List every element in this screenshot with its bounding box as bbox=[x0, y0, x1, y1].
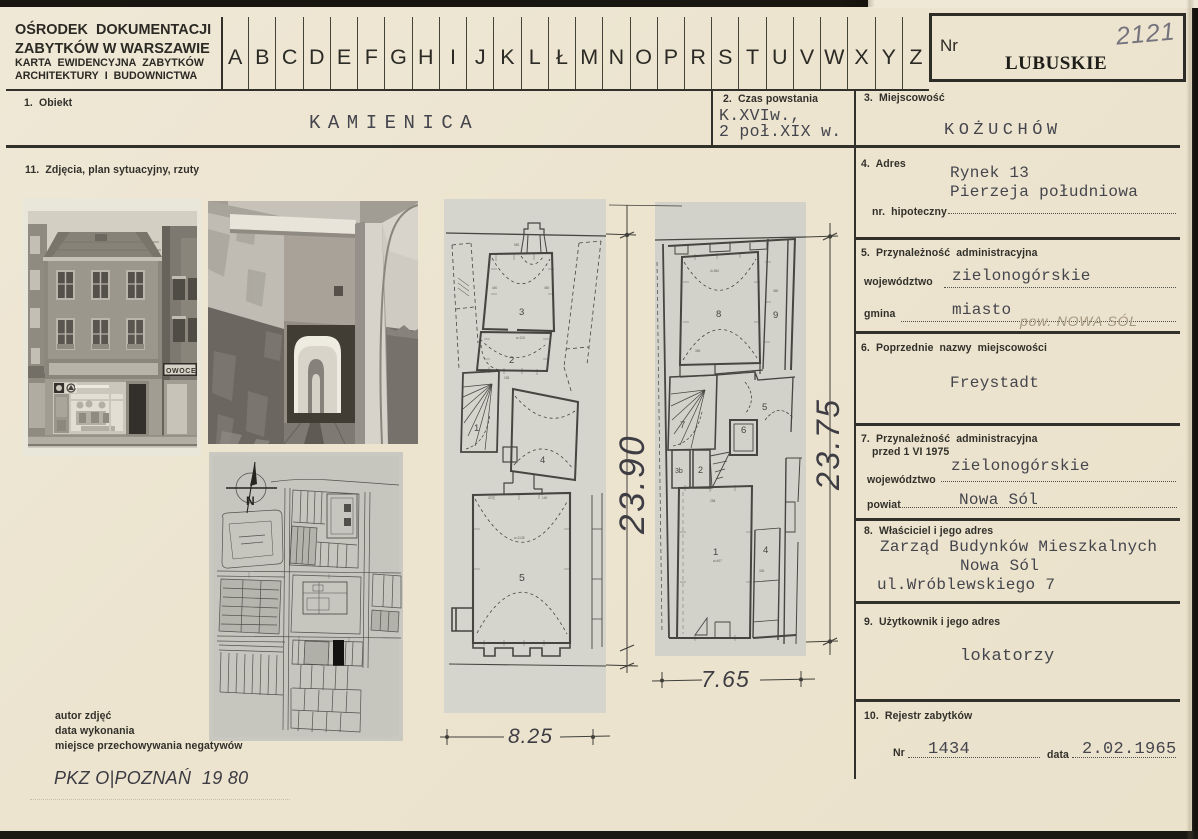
svg-text:7.65: 7.65 bbox=[701, 666, 750, 692]
svg-text:23.75: 23.75 bbox=[810, 397, 846, 491]
svg-text:N: N bbox=[246, 494, 255, 508]
svg-text:23.90: 23.90 bbox=[613, 434, 652, 535]
svg-text:8.25: 8.25 bbox=[508, 725, 553, 748]
svg-text:OWOCE: OWOCE bbox=[166, 368, 196, 375]
